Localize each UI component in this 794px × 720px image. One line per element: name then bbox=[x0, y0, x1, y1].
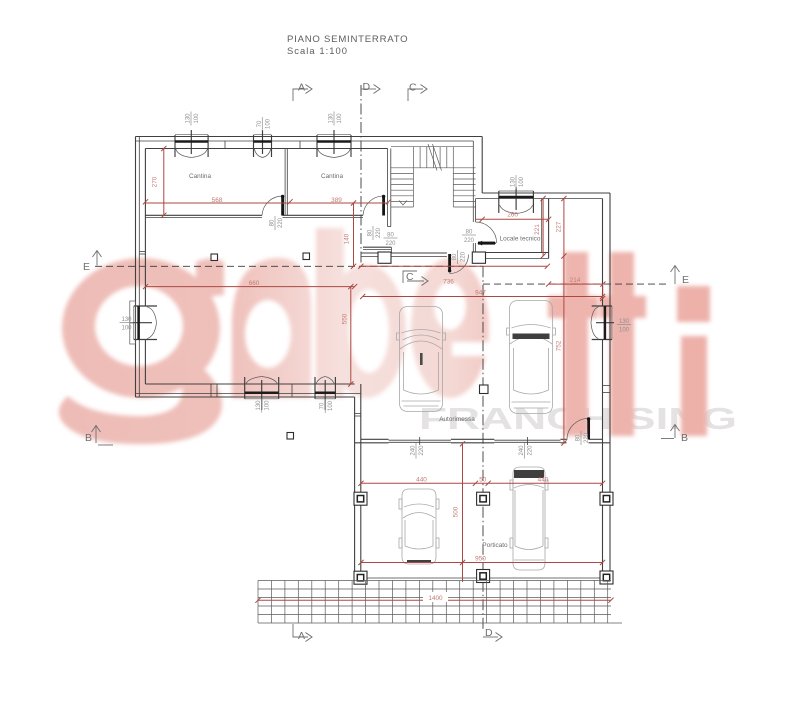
svg-text:260: 260 bbox=[507, 212, 518, 219]
svg-text:500: 500 bbox=[453, 506, 460, 517]
svg-text:70: 70 bbox=[320, 402, 326, 409]
svg-text:B: B bbox=[85, 432, 92, 444]
svg-text:80: 80 bbox=[368, 229, 374, 236]
svg-text:130: 130 bbox=[619, 319, 630, 325]
svg-text:70: 70 bbox=[257, 120, 263, 127]
svg-text:220: 220 bbox=[464, 238, 475, 244]
svg-text:130: 130 bbox=[121, 317, 132, 323]
svg-text:A: A bbox=[298, 630, 305, 642]
svg-text:C: C bbox=[409, 82, 417, 94]
svg-text:1400: 1400 bbox=[428, 595, 443, 602]
svg-text:947: 947 bbox=[475, 290, 486, 297]
svg-text:440: 440 bbox=[416, 477, 427, 484]
svg-text:E: E bbox=[83, 261, 90, 273]
svg-text:Locale tecnico: Locale tecnico bbox=[500, 236, 541, 243]
svg-text:PIANO SEMINTERRATO: PIANO SEMINTERRATO bbox=[287, 34, 408, 45]
svg-text:Porticato: Porticato bbox=[482, 542, 508, 549]
svg-text:550: 550 bbox=[342, 313, 349, 324]
svg-text:214: 214 bbox=[570, 277, 581, 284]
svg-text:270: 270 bbox=[152, 176, 159, 187]
svg-text:220: 220 bbox=[376, 227, 382, 238]
svg-text:220: 220 bbox=[278, 217, 284, 228]
svg-text:A: A bbox=[298, 82, 305, 94]
svg-text:220: 220 bbox=[584, 432, 590, 443]
svg-text:227: 227 bbox=[556, 221, 563, 232]
svg-text:D: D bbox=[363, 81, 371, 93]
svg-text:100: 100 bbox=[121, 326, 132, 332]
svg-text:80: 80 bbox=[576, 434, 582, 441]
svg-text:Autorimessa: Autorimessa bbox=[439, 416, 475, 423]
svg-text:220: 220 bbox=[528, 445, 534, 456]
svg-text:736: 736 bbox=[443, 279, 454, 286]
svg-text:752: 752 bbox=[556, 340, 563, 351]
svg-text:100: 100 bbox=[328, 400, 334, 411]
svg-text:Cantina: Cantina bbox=[321, 173, 343, 180]
svg-text:220: 220 bbox=[461, 251, 467, 262]
svg-text:80: 80 bbox=[387, 233, 394, 239]
svg-text:100: 100 bbox=[194, 113, 200, 124]
svg-text:440: 440 bbox=[538, 477, 549, 484]
svg-text:240: 240 bbox=[519, 445, 525, 456]
svg-text:660: 660 bbox=[249, 280, 260, 287]
svg-text:130: 130 bbox=[256, 400, 262, 411]
svg-text:Scala 1:100: Scala 1:100 bbox=[287, 45, 348, 56]
svg-text:100: 100 bbox=[265, 400, 271, 411]
svg-text:B: B bbox=[681, 432, 688, 444]
svg-text:240: 240 bbox=[411, 445, 417, 456]
svg-text:Cantina: Cantina bbox=[189, 173, 211, 180]
svg-text:100: 100 bbox=[519, 176, 525, 187]
svg-text:100: 100 bbox=[337, 113, 343, 124]
svg-text:80: 80 bbox=[466, 230, 473, 236]
svg-text:80: 80 bbox=[452, 253, 458, 260]
svg-text:950: 950 bbox=[475, 556, 486, 563]
svg-text:220: 220 bbox=[419, 445, 425, 456]
svg-text:100: 100 bbox=[265, 118, 271, 129]
svg-text:C: C bbox=[406, 271, 414, 283]
svg-text:D: D bbox=[485, 627, 493, 639]
svg-text:221: 221 bbox=[534, 224, 541, 235]
svg-text:389: 389 bbox=[331, 197, 342, 204]
svg-text:220: 220 bbox=[385, 241, 396, 247]
svg-text:100: 100 bbox=[619, 328, 630, 334]
svg-text:80: 80 bbox=[270, 219, 276, 226]
svg-text:E: E bbox=[682, 274, 689, 286]
svg-text:568: 568 bbox=[212, 197, 223, 204]
svg-text:130: 130 bbox=[186, 113, 192, 124]
svg-text:130: 130 bbox=[329, 113, 335, 124]
svg-text:140: 140 bbox=[344, 233, 351, 244]
svg-text:50: 50 bbox=[479, 477, 487, 484]
svg-text:130: 130 bbox=[511, 176, 517, 187]
